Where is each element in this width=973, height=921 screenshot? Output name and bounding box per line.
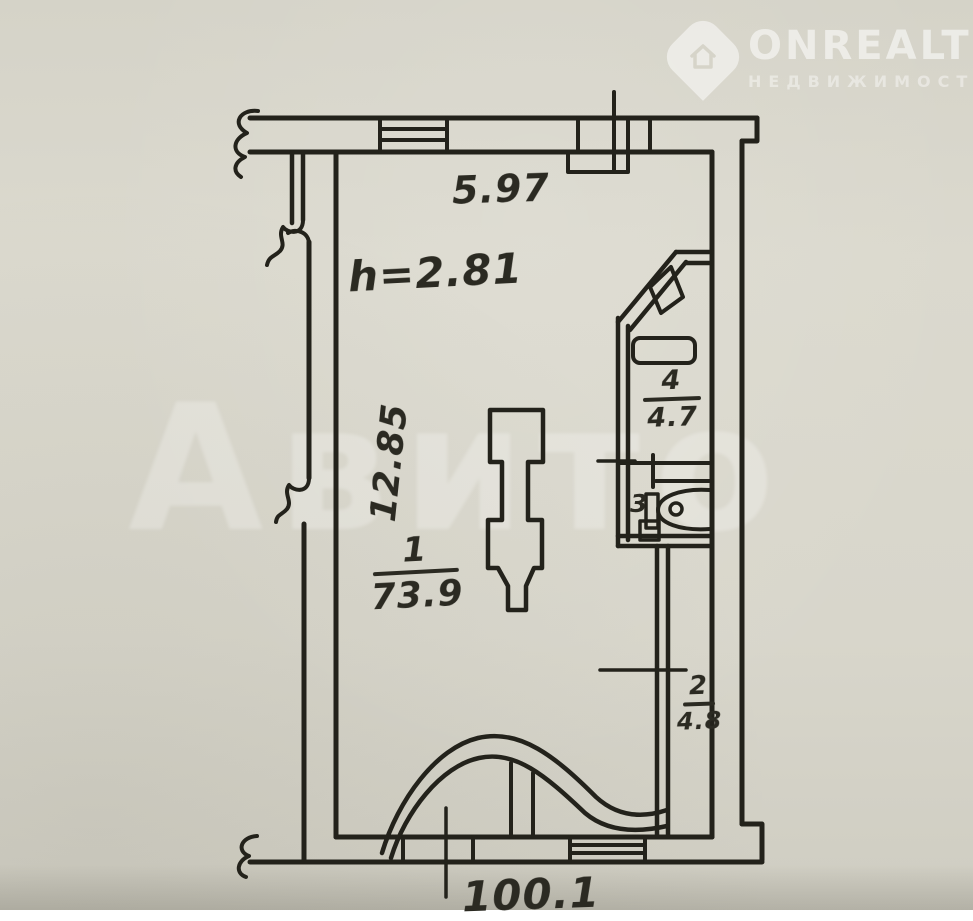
dimension-top: 5.97 [451, 165, 550, 212]
sink-icon [633, 338, 695, 363]
corridor-partition [600, 546, 686, 836]
logo-subtitle-text: НЕДВИЖИМОСТЬ [748, 74, 973, 90]
room-1-area: 73.9 [370, 574, 465, 618]
room-2-area: 4.8 [676, 707, 722, 735]
room-4-area: 4.7 [647, 402, 699, 433]
floor-plan-drawing [0, 0, 973, 910]
window-bottom [570, 837, 645, 862]
logo-brand-text: ONREALT [748, 26, 973, 66]
room-1-number: 1 [401, 531, 428, 570]
floor-plan-lines [235, 92, 762, 897]
room-2-label: 2 4.8 [675, 671, 723, 735]
onrealt-logo: ONREALT НЕДВИЖИМОСТЬ [672, 26, 973, 90]
logo-house-pin-icon [659, 13, 747, 101]
outer-walls [235, 111, 762, 877]
scanned-floor-plan-photo: Авито [0, 0, 973, 910]
ceiling-height-label: h=2.81 [347, 243, 524, 301]
window-top [380, 118, 447, 152]
room-4-label: 4 4.7 [639, 365, 705, 434]
room-4-number: 4 [661, 366, 682, 396]
room-3-number: 3 [630, 489, 648, 518]
room-2-number: 2 [688, 672, 708, 701]
vent-shaft [568, 92, 650, 172]
bottom-wall-dividers [403, 837, 473, 862]
toilet-icon [640, 490, 710, 540]
column-outline [488, 410, 543, 610]
dimension-bottom: 100.1 [461, 868, 600, 921]
curved-wall [382, 736, 667, 858]
room-1-label: 1 73.9 [364, 529, 468, 618]
